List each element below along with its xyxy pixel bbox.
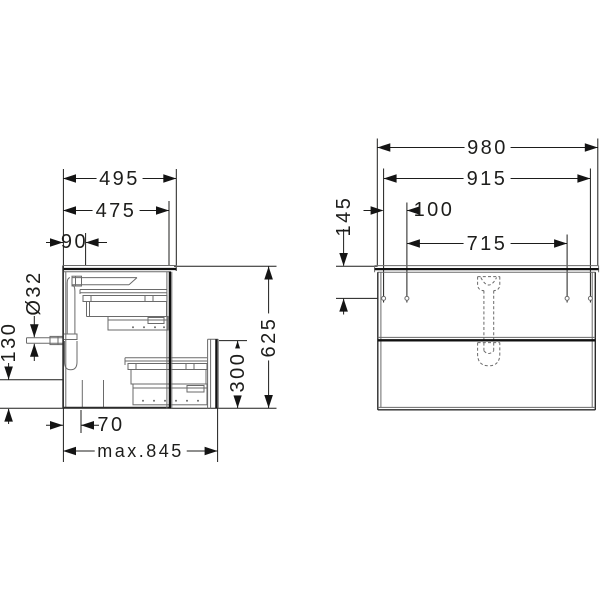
front-view-dimension-lines xyxy=(336,139,598,315)
drawing-canvas xyxy=(0,0,600,600)
dim-drain-height-label: 130 xyxy=(0,322,19,363)
side-view-upper-drawer xyxy=(80,290,168,331)
dim-mounting-span-inner-label: 715 xyxy=(464,234,511,254)
dim-mounting-span-outer-label: 915 xyxy=(464,169,511,189)
front-view-siphon-dashed xyxy=(478,277,500,366)
dim-max-pullout-label: max.845 xyxy=(94,442,187,460)
dim-drain-offset-label: 90 xyxy=(61,232,88,252)
front-view-cabinet xyxy=(375,266,599,410)
dim-drawer-front-height-label: 300 xyxy=(228,348,248,395)
side-view-cabinet xyxy=(63,266,176,409)
dim-depth-carcass-label: 475 xyxy=(93,201,140,221)
technical-drawing: 495 475 90 Ø32 130 70 max.845 300 625 98… xyxy=(0,0,600,600)
front-view-mounting-holes xyxy=(382,296,593,300)
dim-overall-width-label: 980 xyxy=(464,138,511,158)
dim-drain-diameter-label: Ø32 xyxy=(24,270,44,315)
dim-mounting-hole-spacing-label: 100 xyxy=(414,200,455,220)
dim-overall-height-label: 625 xyxy=(259,314,279,361)
dim-recess-depth-label: 70 xyxy=(97,415,124,435)
dim-mounting-height-label: 145 xyxy=(334,195,354,236)
side-view-lower-drawer-pulled-out xyxy=(82,339,218,408)
dim-depth-countertop-label: 495 xyxy=(96,169,143,189)
